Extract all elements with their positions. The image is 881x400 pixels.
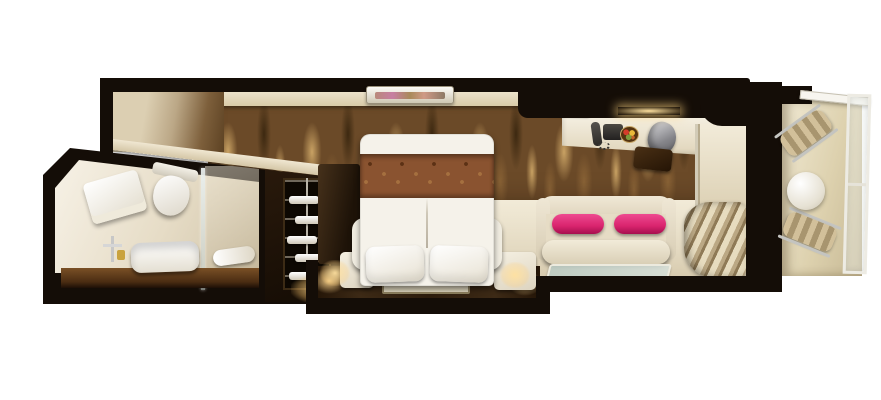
sofa bbox=[536, 196, 676, 266]
tv-screen bbox=[375, 92, 445, 99]
shelf-linens bbox=[287, 236, 317, 244]
shelf-linens bbox=[289, 196, 319, 204]
phone-cord bbox=[598, 142, 610, 150]
cabinet-light-glow bbox=[618, 107, 680, 115]
pillow bbox=[365, 245, 424, 283]
bolster-pillow bbox=[614, 214, 666, 234]
wall-corridor-left bbox=[100, 78, 113, 154]
wall-top-right-corner bbox=[700, 82, 782, 126]
floorplan-canvas bbox=[0, 0, 881, 400]
bed bbox=[360, 134, 494, 286]
faucet bbox=[101, 236, 127, 266]
mirror-panel bbox=[698, 124, 748, 214]
glass-railing bbox=[843, 94, 872, 275]
sofa-front-edge bbox=[542, 240, 670, 264]
soap-dispenser bbox=[117, 250, 125, 260]
toilet bbox=[141, 161, 205, 223]
tv-panel bbox=[366, 86, 454, 104]
curtains bbox=[684, 202, 746, 278]
platform-wall-bottom bbox=[306, 298, 550, 314]
sink-basin bbox=[130, 241, 199, 273]
wall-bottom-right bbox=[540, 276, 782, 292]
bedside-lamp-glow bbox=[500, 262, 530, 288]
faucet-handle bbox=[103, 244, 122, 247]
platform-wall-left bbox=[306, 260, 318, 302]
bed-runner bbox=[360, 154, 494, 198]
ottoman-stool bbox=[633, 146, 673, 172]
bolster-pillow bbox=[552, 214, 604, 234]
railing-mid-bar bbox=[848, 183, 866, 186]
curtain-rod bbox=[695, 124, 698, 214]
faucet-stem bbox=[111, 236, 114, 262]
bedside-lamp-glow bbox=[320, 260, 350, 286]
balcony-table bbox=[787, 172, 825, 210]
duvet-crease bbox=[426, 198, 428, 248]
fruit-bowl bbox=[620, 126, 639, 143]
pillow bbox=[429, 245, 488, 283]
